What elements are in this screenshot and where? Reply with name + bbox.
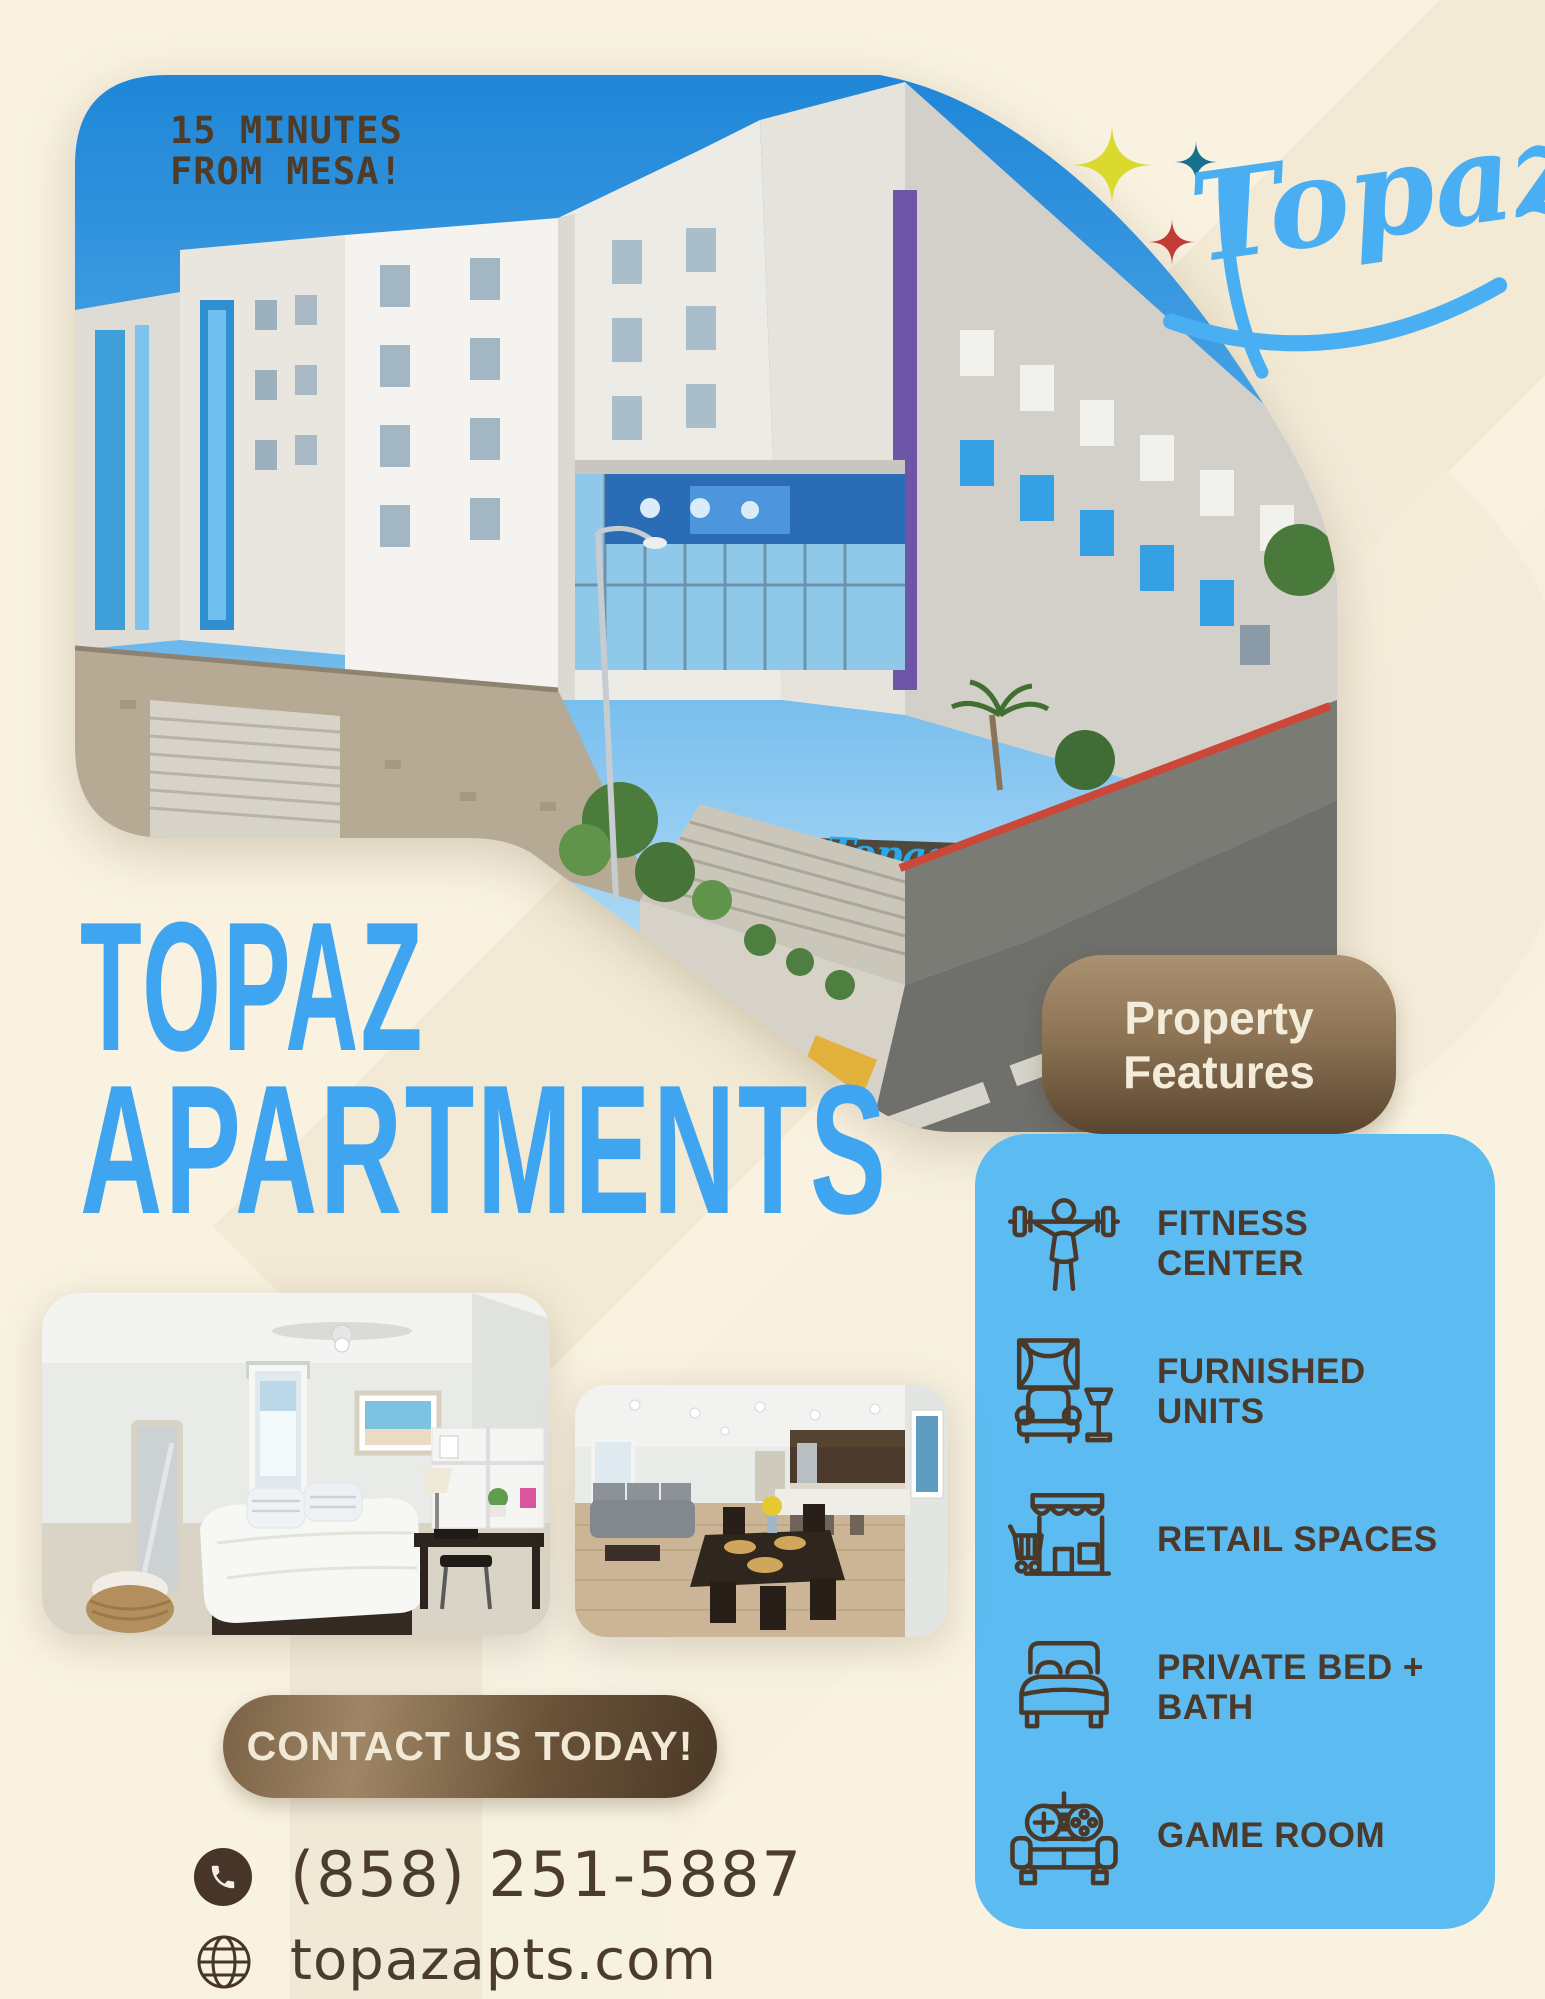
storefront-icon (1005, 1481, 1123, 1599)
globe-icon (196, 1934, 252, 1992)
feature-label: FURNISHED UNITS (1157, 1352, 1465, 1432)
feature-row-fitness: FITNESS CENTER (1005, 1170, 1465, 1318)
dumbbell-icon (1005, 1185, 1123, 1303)
feature-row-retail: RETAIL SPACES (1005, 1466, 1465, 1614)
armchair-icon (1005, 1333, 1123, 1451)
feature-label: RETAIL SPACES (1157, 1520, 1438, 1560)
website-url: topazapts.com (290, 1928, 717, 1993)
feature-row-furnished: FURNISHED UNITS (1005, 1318, 1465, 1466)
feature-label: FITNESS CENTER (1157, 1204, 1465, 1284)
feature-row-bedbath: PRIVATE BED + BATH (1005, 1614, 1465, 1762)
bedroom-photo (42, 1293, 550, 1635)
title-line2: APARTMENTS (80, 1047, 889, 1253)
phone-icon (194, 1848, 252, 1906)
feature-label: GAME ROOM (1157, 1816, 1385, 1856)
contact-pill-label: CONTACT US TODAY! (247, 1723, 694, 1769)
feature-row-gameroom: GAME ROOM (1005, 1762, 1465, 1910)
gamepad-icon (1005, 1777, 1123, 1895)
feature-label: PRIVATE BED + BATH (1157, 1648, 1465, 1728)
features-panel: FITNESS CENTER FURNISHED UNITS (975, 1134, 1495, 1929)
bed-icon (1005, 1629, 1123, 1747)
living-room-photo (575, 1385, 948, 1637)
property-features-badge: Property Features (1042, 955, 1396, 1134)
apartment-flyer: Topaz (0, 0, 1545, 1999)
phone-number: (858) 251-5887 (290, 1838, 803, 1911)
contact-us-pill: CONTACT US TODAY! (223, 1695, 717, 1798)
badge-line2: Features (1042, 1045, 1396, 1099)
badge-line1: Property (1042, 991, 1396, 1045)
